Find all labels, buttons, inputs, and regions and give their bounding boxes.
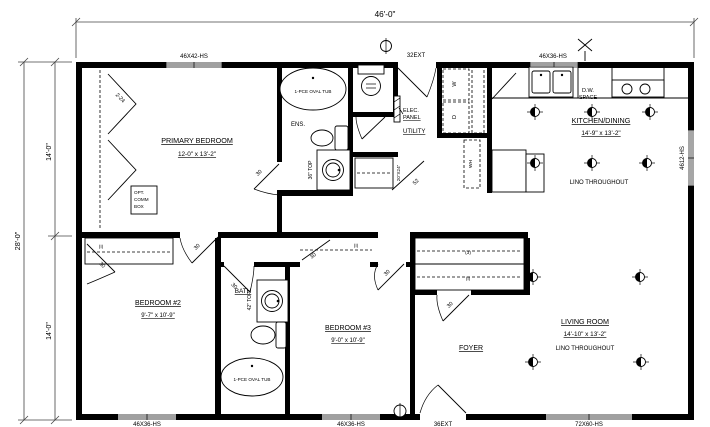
room-size: 12-0" x 13'-2"	[178, 151, 216, 158]
closet-shelf-label: (3)	[465, 250, 471, 256]
window-label: 46X36-HS	[133, 422, 161, 427]
window-label: 4612-HS	[680, 146, 686, 170]
electrical-panel-icon	[394, 96, 403, 122]
room-name: PRIMARY BEDROOM	[161, 136, 233, 145]
bedroom2-closet: (I)	[85, 238, 173, 264]
door-size-label: 30	[446, 301, 455, 310]
front-exterior-door: 36EXT	[394, 385, 466, 427]
upper-depth-dim: 14'-0"	[46, 143, 53, 161]
ensuite-tub-icon: 1-PCE OVAL TUB	[280, 68, 346, 110]
dw-label1: D.W.	[582, 88, 594, 94]
pot-light-icon	[639, 155, 655, 171]
dimension-lines: 46'-0" 28'-0" 14'-0" 14'-0"	[13, 10, 698, 424]
window-icon-bottom-center	[322, 414, 380, 421]
pot-light-icon	[525, 354, 541, 370]
overall-depth-dim: 28'-0"	[13, 231, 22, 250]
floor-note: LINO THROUGHOUT	[556, 346, 615, 352]
pot-light-icon	[642, 104, 658, 120]
bath-toilet-icon	[251, 322, 286, 348]
window-label: 46X42-HS	[180, 54, 208, 60]
bedroom2-door: 30	[180, 237, 218, 263]
bifold-size-label: 2-24	[114, 92, 126, 104]
pot-light-icon	[584, 155, 600, 171]
tub-label: 1-PCE OVAL TUB	[234, 377, 271, 382]
stove-icon	[612, 80, 664, 97]
lower-depth-dim: 14'-0"	[46, 322, 53, 340]
water-heater-icon: WH	[464, 140, 480, 188]
elec-panel-label2: PANEL	[403, 115, 421, 121]
pot-light-icon	[527, 104, 543, 120]
washer-label: W	[452, 81, 458, 87]
closet-shelf-label: (I)	[99, 244, 104, 250]
linen-closet	[355, 158, 393, 188]
ensuite-vanity-icon: 36" TOP	[308, 150, 350, 190]
exterior-light-icon	[381, 38, 392, 54]
attic-access-label: 20"X24"	[396, 164, 401, 181]
pot-light-icon	[633, 354, 649, 370]
door-size-label: 30	[255, 169, 264, 178]
closet-shelf-label: (I)	[466, 276, 471, 282]
opt-comm-line2: COMM	[134, 197, 149, 202]
room-name: BEDROOM #2	[135, 300, 181, 307]
rear-door-label: 32EXT	[407, 53, 426, 59]
window-icon-bottom-left	[118, 414, 176, 421]
foyer-closets: (3) (I)	[415, 238, 524, 290]
ensuite-toilet-icon	[311, 126, 348, 150]
room-size: 14'-9" x 13'-2"	[581, 130, 620, 137]
room-size: 9'-7" x 10'-9"	[141, 313, 175, 319]
water-heater-label: WH	[468, 159, 474, 168]
dw-label2: SPACE	[579, 95, 598, 101]
window-icon-bottom-right	[546, 414, 632, 421]
bedroom3-closet: (I) 30	[300, 240, 372, 260]
bath-vanity-icon: 42" TOP	[247, 280, 288, 322]
front-door-opening	[420, 414, 466, 421]
wc-door	[356, 117, 385, 139]
elec-panel-label1: ELEC.	[403, 108, 419, 114]
room-name: UTILITY	[403, 129, 425, 135]
opt-comm-box: OPT. COMM BOX	[131, 186, 157, 214]
floor-plan-drawing: 46'-0" 28'-0" 14'-0" 14'-0"	[0, 0, 710, 427]
dryer-icon: D	[443, 102, 469, 133]
tub-label: 1-PCE OVAL TUB	[295, 89, 332, 94]
utility-angled-door: 52 20"X24"	[392, 161, 424, 190]
floor-note: LINO THROUGHOUT	[570, 180, 629, 186]
overall-width-dim: 46'-0"	[375, 10, 396, 19]
room-size: 14'-10" x 13'-2"	[564, 331, 607, 338]
rear-door-opening	[396, 62, 436, 69]
wall-light-icon	[578, 39, 592, 61]
door-size-label: 30	[383, 269, 392, 278]
vanity-size-label: 36" TOP	[308, 160, 314, 179]
door-size-label: 52	[412, 178, 421, 187]
window-label: 72X60-HS	[575, 422, 603, 427]
floor-plan-sheet: 46'-0" 28'-0" 14'-0" 14'-0"	[0, 0, 710, 427]
room-name: ENS.	[291, 122, 305, 128]
closet-shelf-label: (I)	[354, 243, 359, 249]
foyer-door: 30	[437, 295, 469, 321]
wc-toilet-icon	[358, 65, 384, 96]
window-label: 46X36-HS	[337, 422, 365, 427]
window-label: 46X36-HS	[539, 54, 567, 60]
room-name: LIVING ROOM	[561, 317, 609, 326]
washer-icon: W	[443, 69, 469, 100]
room-name: BEDROOM #3	[325, 325, 371, 332]
dryer-label: D	[452, 115, 458, 119]
door-size-label: 30	[193, 243, 202, 252]
door-size-label: 30	[309, 252, 318, 260]
bath-tub-icon: 1-PCE OVAL TUB	[221, 358, 283, 396]
kitchen-sink-icon	[529, 67, 573, 97]
window-icon-top-left	[166, 62, 222, 69]
bedroom3-door: 30	[375, 264, 405, 290]
room-name: KITCHEN/DINING	[572, 116, 631, 125]
opt-comm-line3: BOX	[134, 204, 144, 209]
room-name: FOYER	[459, 345, 483, 352]
pot-light-icon	[632, 269, 648, 285]
utility-shelf-icon	[472, 67, 484, 133]
fridge-icon	[492, 150, 544, 192]
primary-bedroom-door: 30	[254, 164, 279, 195]
room-size: 9'-0" x 10'-9"	[331, 338, 365, 344]
window-icon-right	[688, 130, 695, 186]
room-name: BATH	[235, 288, 252, 295]
opt-comm-line1: OPT.	[134, 190, 144, 195]
front-door-label: 36EXT	[434, 422, 453, 427]
